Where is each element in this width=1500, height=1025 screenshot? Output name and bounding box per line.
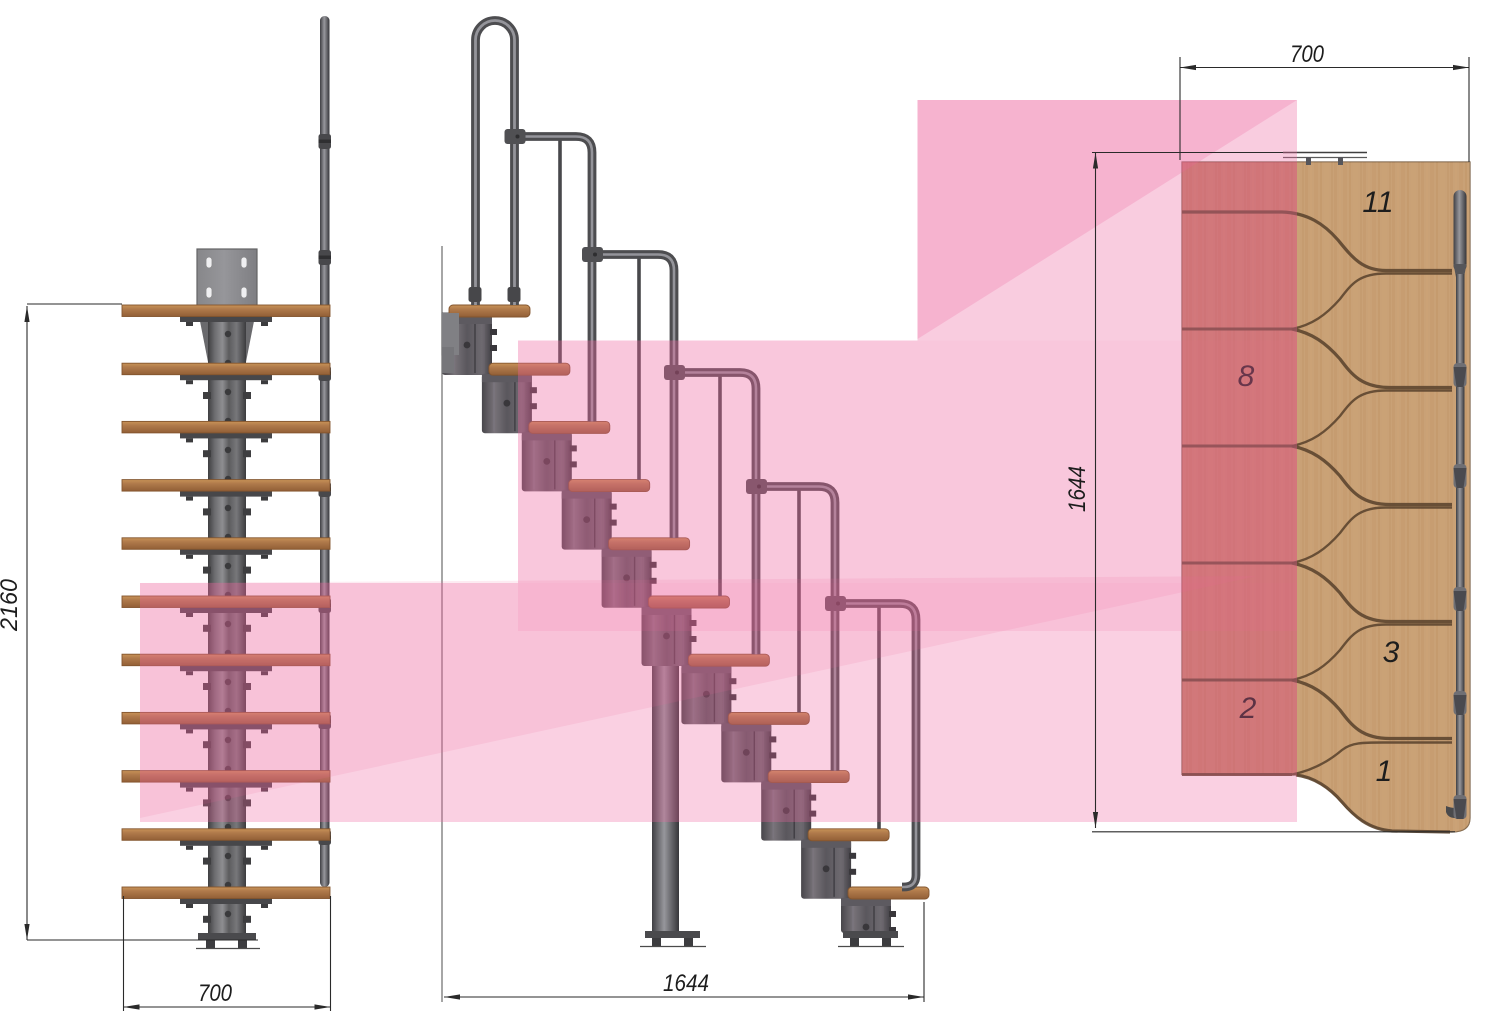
svg-text:11: 11	[1362, 186, 1393, 219]
svg-text:1: 1	[1376, 755, 1393, 788]
svg-text:1644: 1644	[1064, 466, 1091, 512]
svg-text:700: 700	[1290, 41, 1325, 68]
svg-text:1644: 1644	[663, 970, 709, 997]
svg-text:3: 3	[1383, 636, 1400, 669]
svg-text:2160: 2160	[0, 578, 23, 632]
svg-text:700: 700	[198, 980, 233, 1007]
